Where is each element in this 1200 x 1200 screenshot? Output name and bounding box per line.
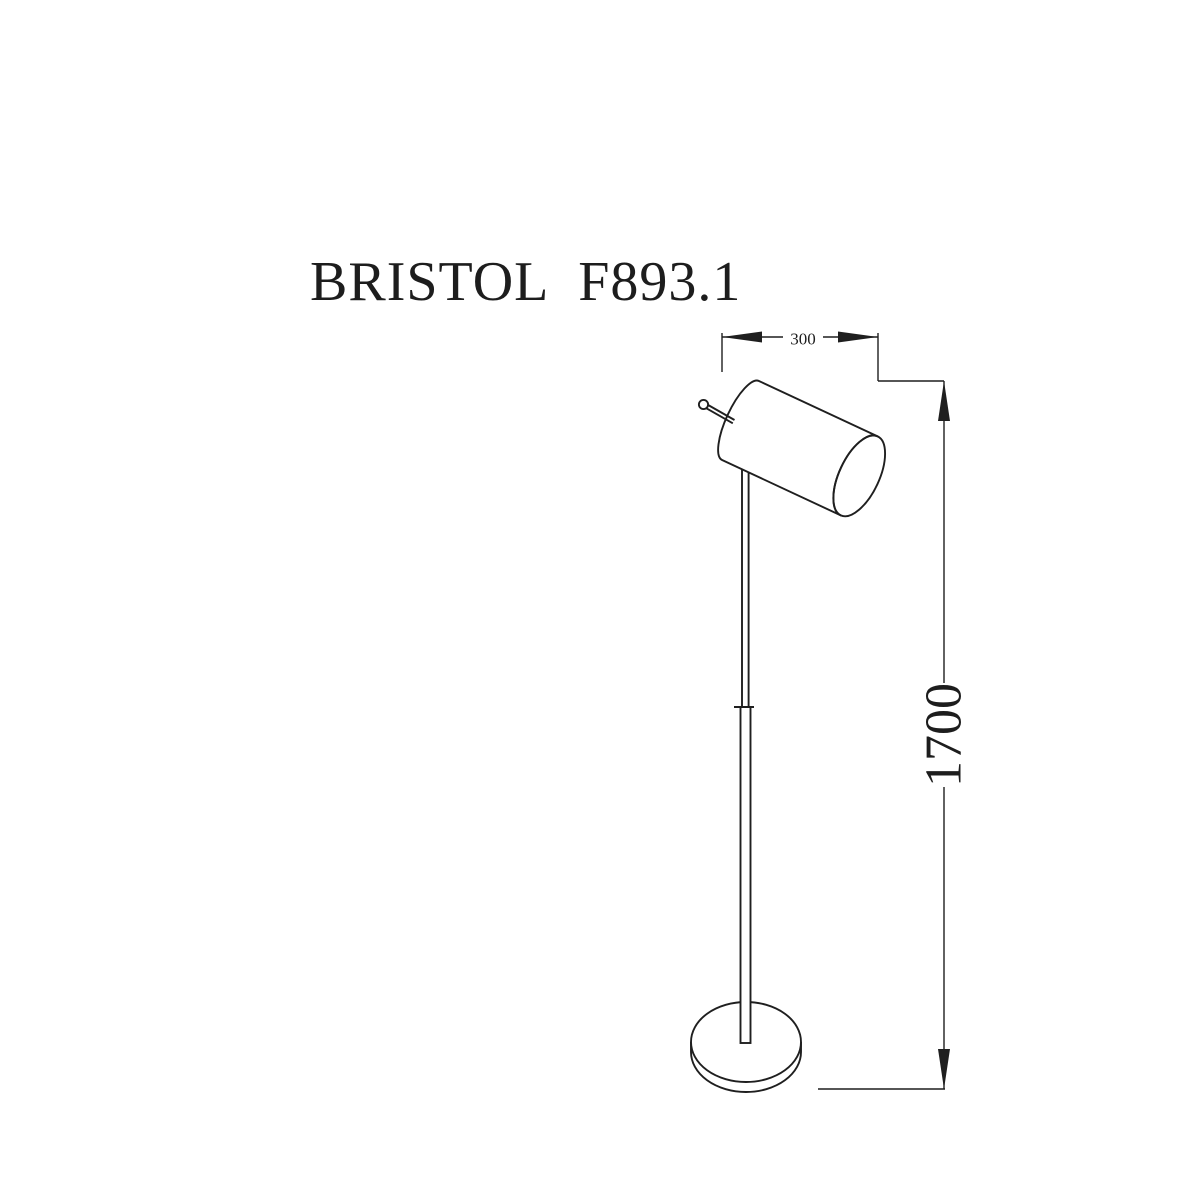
shade-body-outline — [709, 375, 877, 515]
dim-arrow-left-icon — [722, 332, 762, 343]
dim-arrow-right-icon — [838, 332, 878, 343]
lamp-shade — [709, 375, 895, 524]
drawing-sheet: BRISTOL F893.1 300 1700 — [0, 0, 1200, 1200]
dimension-width: 300 — [722, 328, 878, 381]
dim-height-label: 1700 — [916, 683, 973, 787]
pole-lower-section — [741, 707, 751, 1043]
dim-arrow-up-icon — [938, 381, 950, 421]
dimension-height: 1700 — [818, 381, 973, 1089]
dim-arrow-down-icon — [938, 1049, 950, 1089]
lamp-pole — [734, 445, 754, 1043]
knob-tip — [699, 400, 708, 409]
technical-drawing: 300 1700 — [0, 0, 1200, 1200]
dim-width-label: 300 — [790, 330, 816, 349]
